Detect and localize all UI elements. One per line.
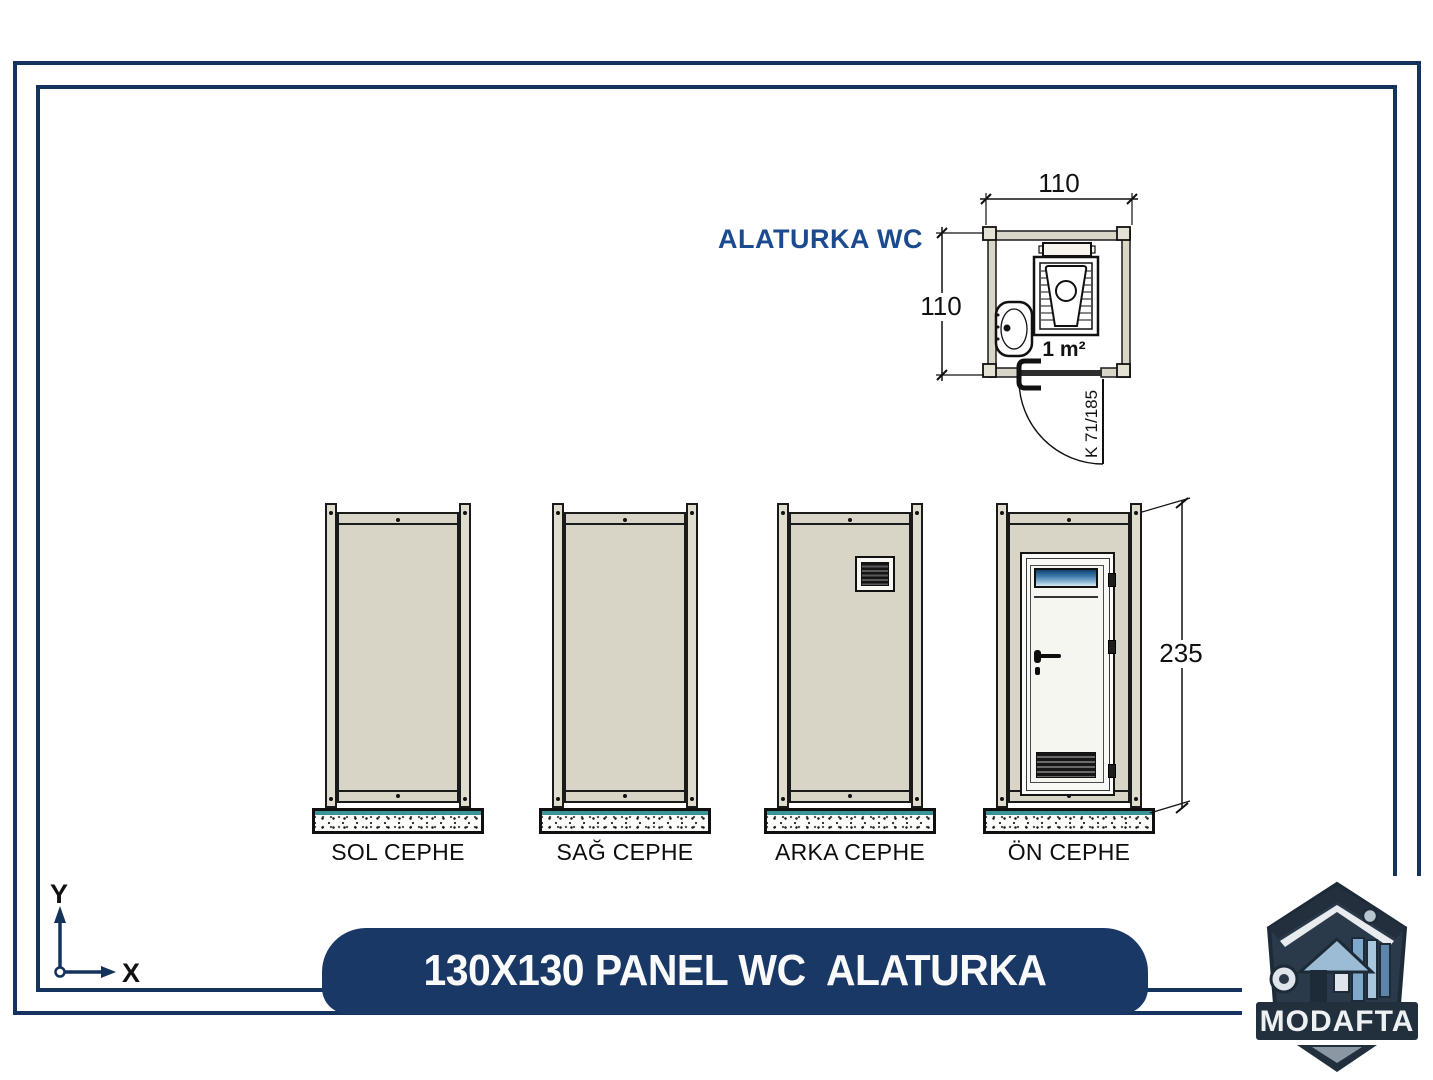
wall-panel: [337, 512, 459, 803]
drawing-title: 130X130 PANEL WC ALATURKA: [423, 946, 1046, 996]
corner-post: [325, 503, 337, 808]
elevation-right: SAĞ CEPHE: [539, 503, 711, 865]
elevation-label: ARKA CEPHE: [764, 839, 936, 866]
logo-badge-icon: MODAFTA: [1242, 876, 1432, 1076]
concrete-base: [983, 808, 1155, 834]
elevation-label: SOL CEPHE: [312, 839, 484, 866]
corner-post: [777, 503, 789, 808]
concrete-base: [539, 808, 711, 834]
elevation-front: ÖN CEPHE: [983, 503, 1155, 865]
elevation-label: SAĞ CEPHE: [539, 839, 711, 866]
concrete-base: [764, 808, 936, 834]
corner-post: [1130, 503, 1142, 808]
entry-door: [1020, 552, 1115, 796]
wall-panel: [564, 512, 686, 803]
company-logo: MODAFTA: [1242, 876, 1432, 1076]
drawing-sheet: ALATURKA WC SOL CEPHE SAĞ CEPHE: [0, 0, 1433, 1080]
door-hinge: [1108, 640, 1116, 654]
door-window-sill: [1034, 588, 1098, 598]
door-handle: [1037, 654, 1061, 658]
corner-post: [911, 503, 923, 808]
door-keyhole: [1035, 667, 1040, 675]
elevation-left: SOL CEPHE: [312, 503, 484, 865]
logo-text: MODAFTA: [1260, 1005, 1415, 1038]
door-hinge: [1108, 573, 1116, 587]
door-leaf: [1030, 565, 1104, 783]
vent-grille-slats: [861, 562, 889, 586]
corner-post: [552, 503, 564, 808]
door-vent-grille: [1036, 752, 1096, 778]
elevation-back: ARKA CEPHE: [764, 503, 936, 865]
concrete-base: [312, 808, 484, 834]
elevation-label: ÖN CEPHE: [983, 839, 1155, 866]
corner-post: [686, 503, 698, 808]
door-hinge: [1108, 764, 1116, 778]
corner-post: [996, 503, 1008, 808]
vent-grille: [855, 556, 895, 592]
corner-post: [459, 503, 471, 808]
sheet-border-inner: [36, 85, 1397, 992]
plan-heading: ALATURKA WC: [718, 224, 923, 255]
wall-panel: [789, 512, 911, 803]
title-bar: 130X130 PANEL WC ALATURKA: [322, 928, 1148, 1014]
door-window: [1034, 568, 1098, 588]
